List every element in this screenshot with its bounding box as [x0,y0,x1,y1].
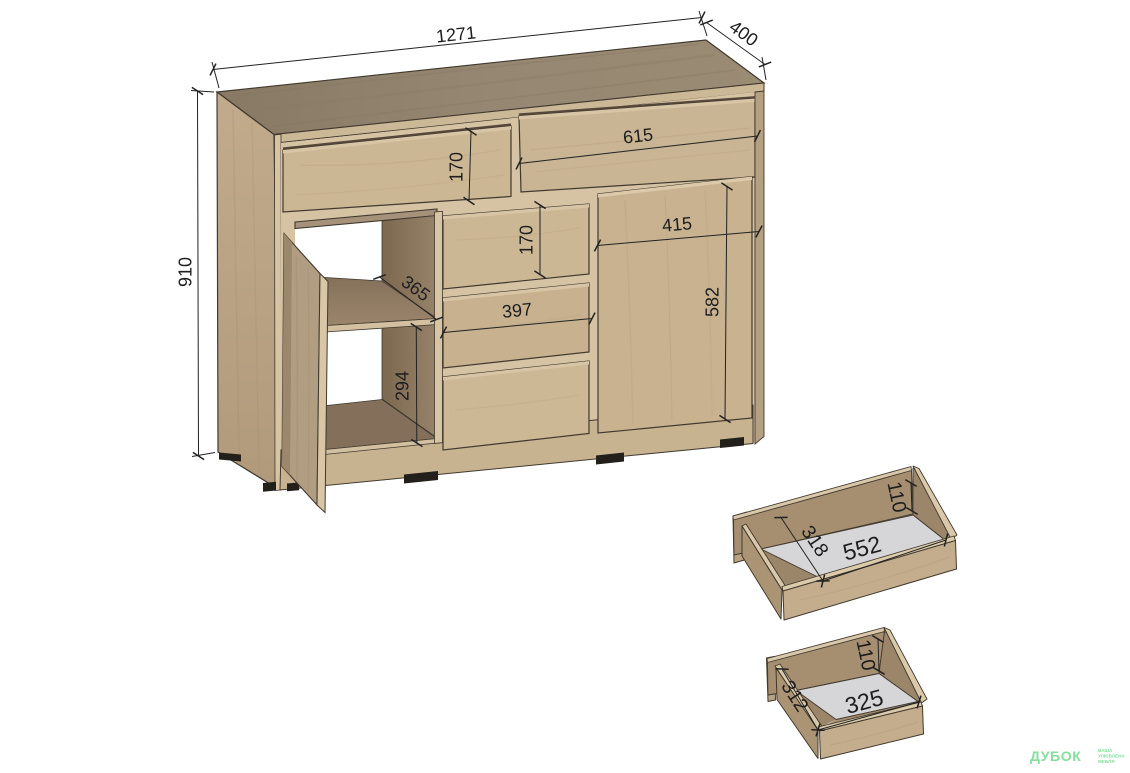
svg-text:1271: 1271 [435,22,477,46]
svg-text:МЕБЛЯ: МЕБЛЯ [1098,759,1115,764]
svg-text:294: 294 [393,371,413,401]
svg-text:ДУБОК: ДУБОК [1030,748,1081,764]
svg-text:910: 910 [176,257,196,287]
svg-text:ВАША: ВАША [1098,748,1113,753]
svg-text:615: 615 [622,124,654,147]
svg-text:582: 582 [703,287,723,317]
svg-text:170: 170 [447,152,467,182]
svg-text:170: 170 [517,225,537,255]
svg-text:397: 397 [501,299,533,322]
svg-text:415: 415 [661,213,693,236]
svg-text:УЛЮБЛЕНА: УЛЮБЛЕНА [1098,754,1125,759]
